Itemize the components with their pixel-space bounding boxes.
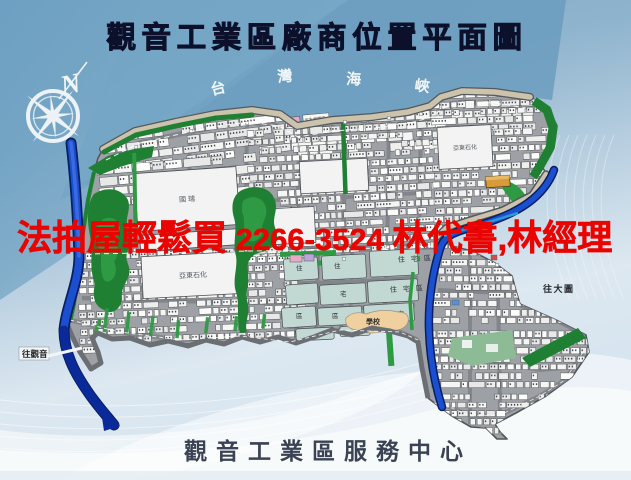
svg-text:灣: 灣 <box>277 67 294 86</box>
svg-text:學校: 學校 <box>366 317 381 326</box>
svg-text:宅: 宅 <box>340 289 347 298</box>
svg-text:住: 住 <box>296 263 303 272</box>
svg-text:法拍屋輕鬆買 2266-3524 林代書,林經理: 法拍屋輕鬆買 2266-3524 林代書,林經理 <box>17 219 612 258</box>
svg-text:海: 海 <box>346 70 362 89</box>
svg-text:區: 區 <box>332 312 339 320</box>
svg-text:往大圖: 往大圖 <box>543 283 575 294</box>
svg-text:往觀音: 往觀音 <box>22 349 48 359</box>
svg-text:住: 住 <box>334 261 341 270</box>
svg-text:觀音工業區廠商位置平面圖: 觀音工業區廠商位置平面圖 <box>106 21 527 55</box>
svg-text:觀音工業區服務中心: 觀音工業區服務中心 <box>184 438 472 464</box>
svg-text:區: 區 <box>296 312 303 320</box>
